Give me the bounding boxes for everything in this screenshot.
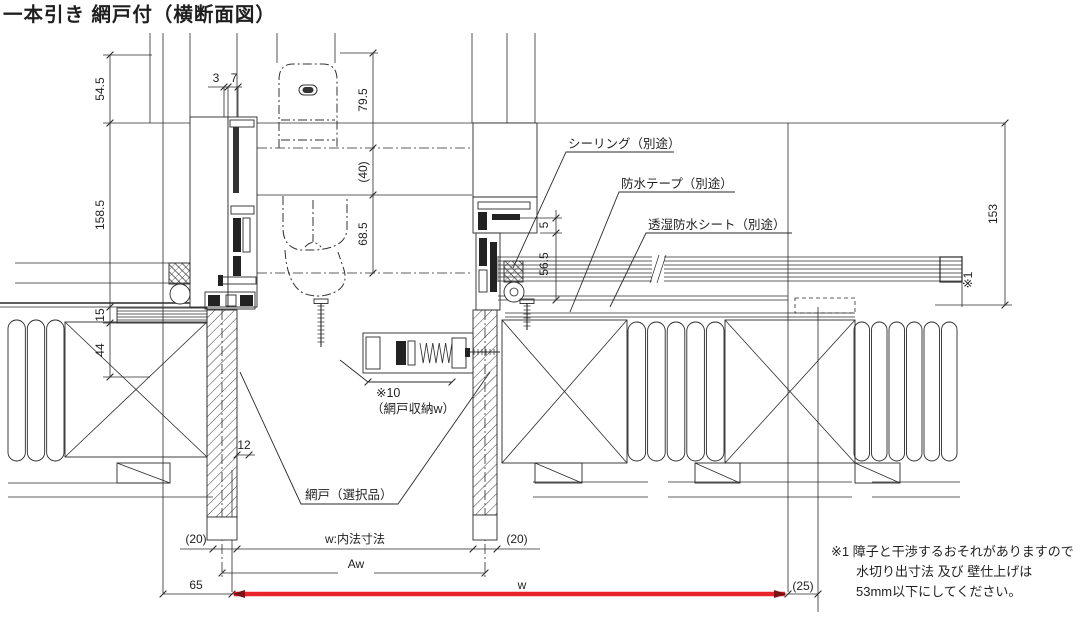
dim-pillar-gap: 12 bbox=[237, 438, 251, 452]
dim-handle-in: 68.5 bbox=[356, 222, 370, 246]
dim-clear-right: (20) bbox=[506, 532, 527, 546]
dim-handle-gap: (40) bbox=[356, 161, 370, 182]
callout-screen: 網戸（選択品） bbox=[305, 488, 393, 502]
callout-sheet: 透湿防水シート（別途） bbox=[648, 217, 786, 232]
callout-housing: （網戸収納w） bbox=[371, 402, 455, 416]
ref-mark-1: ※1 bbox=[961, 271, 975, 288]
dim-small-b: 7 bbox=[231, 71, 238, 85]
arrow-left-icon bbox=[232, 590, 245, 598]
dim-clear-left: (20) bbox=[185, 532, 206, 546]
callout-sealing: シーリング（別途） bbox=[568, 136, 681, 151]
dim-wall-total: 153 bbox=[986, 204, 1000, 224]
door-handle-phantom bbox=[279, 64, 347, 296]
cross-section-drawing: 一本引き 網戸付（横断面図） 54.5 158.5 3 7 79.5 (40) … bbox=[0, 0, 1083, 618]
note-line-3: 53mm以下にしてください。 bbox=[856, 584, 1021, 599]
callout-tape: 防水テープ（別途） bbox=[621, 176, 733, 191]
dim-flashing: 15 bbox=[93, 308, 107, 322]
rough-width-highlight bbox=[232, 590, 787, 598]
dim-small-a: 3 bbox=[213, 71, 220, 85]
leader-lines bbox=[240, 152, 792, 504]
dim-seal-gap: 5 bbox=[537, 221, 551, 228]
note-line-2: 水切り出寸法 及び 壁仕上げは bbox=[856, 564, 1032, 579]
dim-sill-depth: 44 bbox=[93, 343, 107, 357]
dim-frame-to-siding: 56.5 bbox=[537, 252, 551, 276]
handle-knob-icon bbox=[299, 85, 317, 95]
drawing-canvas: 一本引き 網戸付（横断面図） 54.5 158.5 3 7 79.5 (40) … bbox=[0, 0, 1083, 618]
note-line-1: ※1 障子と干渉するおそれがありますので bbox=[831, 544, 1074, 559]
dim-aw: Aw bbox=[348, 557, 365, 571]
dim-rough-width: w bbox=[517, 578, 527, 592]
dim-jamb-depth: 158.5 bbox=[93, 200, 107, 230]
dim-right-offset: (25) bbox=[792, 579, 813, 593]
linework bbox=[0, 33, 1012, 612]
dim-clear-width: w:内法寸法 bbox=[324, 532, 385, 546]
drawing-title: 一本引き 網戸付（横断面図） bbox=[3, 3, 276, 26]
dim-handle-out: 79.5 bbox=[356, 88, 370, 112]
ref-mark-10: ※10 bbox=[376, 386, 400, 400]
dim-head-offset: 54.5 bbox=[93, 77, 107, 101]
dim-left-offset: 65 bbox=[189, 578, 203, 592]
